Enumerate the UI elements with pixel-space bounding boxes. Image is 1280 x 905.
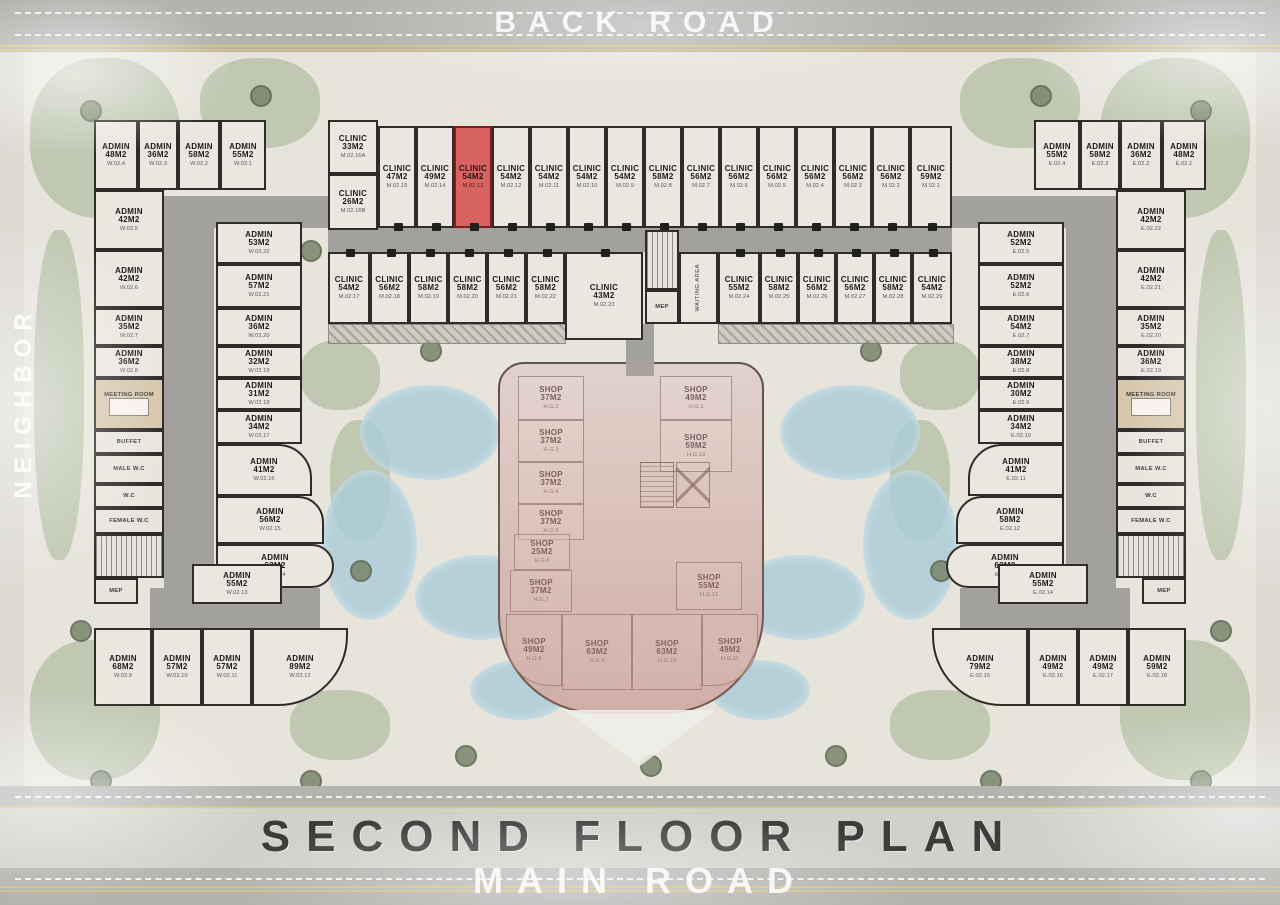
unit-e-02-1[interactable]: ADMIN48M2E.02.1 xyxy=(1162,120,1206,190)
green-area xyxy=(34,230,84,560)
room-mep: MEP xyxy=(1142,578,1186,604)
door-icon xyxy=(622,223,631,231)
tree-icon xyxy=(250,85,272,107)
unit-m-02-2[interactable]: CLINIC56M2M.02.2 xyxy=(872,126,910,228)
door-icon xyxy=(543,249,552,257)
page-title: SECOND FLOOR PLAN xyxy=(0,812,1280,862)
unit-m-02-28[interactable]: CLINIC58M2M.02.28 xyxy=(874,252,912,324)
unit-label: M.02.26 xyxy=(807,294,828,300)
door-icon xyxy=(929,249,938,257)
unit-label: M.02.19 xyxy=(418,294,439,300)
door-icon xyxy=(774,223,783,231)
unit-label: M.02.11 xyxy=(539,183,560,189)
unit-label: 36M2 xyxy=(118,358,139,367)
unit-label: 41M2 xyxy=(1005,466,1026,475)
unit-label: 63M2 xyxy=(586,648,607,657)
unit-label: 55M2 xyxy=(226,580,247,589)
unit-label: 54M2 xyxy=(614,173,635,182)
unit-label: 42M2 xyxy=(1140,275,1161,284)
unit-h-g-10[interactable]: SHOP63M2H.G.10 xyxy=(632,614,702,690)
unit-e-02-10[interactable]: ADMIN34M2E.02.10 xyxy=(978,410,1064,444)
door-icon xyxy=(387,249,396,257)
unit-label: 32M2 xyxy=(248,358,269,367)
unit-label: H.G.7 xyxy=(533,597,548,603)
unit-w-02-5[interactable]: ADMIN42M2W.02.5 xyxy=(94,190,164,250)
unit-label: E.02.6 xyxy=(1013,292,1030,298)
unit-label: 56M2 xyxy=(379,284,400,293)
unit-m-02-13[interactable]: CLINIC54M2M.02.13 xyxy=(454,126,492,228)
unit-w-02-17[interactable]: ADMIN34M2W.02.17 xyxy=(216,410,302,444)
pergola-hatch xyxy=(328,324,566,344)
pool-shape xyxy=(322,470,417,620)
unit-label: M.02.4 xyxy=(806,183,824,189)
unit-m-02-18[interactable]: CLINIC56M2M.02.18 xyxy=(370,252,409,324)
unit-e-02-2[interactable]: ADMIN36M2E.02.2 xyxy=(1120,120,1162,190)
tree-icon xyxy=(350,560,372,582)
unit-label: 38M2 xyxy=(1010,358,1031,367)
unit-m-02-21[interactable]: CLINIC56M2M.02.21 xyxy=(487,252,526,324)
unit-label: 36M2 xyxy=(1140,358,1161,367)
unit-label: M.02.22 xyxy=(535,294,556,300)
room-female-w-c: FEMALE W.C xyxy=(1116,508,1186,534)
tower-elevator-icon xyxy=(676,462,710,508)
unit-e-02-4[interactable]: ADMIN55M2E.02.4 xyxy=(1034,120,1080,190)
unit-label: 49M2 xyxy=(1092,663,1113,672)
back-road-label: BACK ROAD xyxy=(0,6,1280,40)
unit-m-02-25[interactable]: CLINIC58M2M.02.25 xyxy=(760,252,798,324)
unit-label: M.02.28 xyxy=(883,294,904,300)
unit-label: 36M2 xyxy=(147,151,168,160)
unit-w-02-3[interactable]: ADMIN36M2W.02.3 xyxy=(138,120,178,190)
unit-label: 43M2 xyxy=(593,292,614,301)
room-mep: MEP xyxy=(645,290,679,324)
unit-m-02-1[interactable]: CLINIC59M2M.02.1 xyxy=(910,126,952,228)
unit-label: M.02.1 xyxy=(922,183,940,189)
unit-label: 59M2 xyxy=(1146,663,1167,672)
door-icon xyxy=(928,223,937,231)
unit-w-02-4[interactable]: ADMIN48M2W.02.4 xyxy=(94,120,138,190)
unit-e-02-18[interactable]: ADMIN59M2E.02.18 xyxy=(1128,628,1186,706)
unit-label: M.02.15 xyxy=(387,183,408,189)
tower-stairs-icon xyxy=(640,462,674,508)
unit-e-02-21[interactable]: ADMIN42M2E.02.21 xyxy=(1116,250,1186,308)
door-icon xyxy=(776,249,785,257)
unit-label: 54M2 xyxy=(576,173,597,182)
room-female-w-c: FEMALE W.C xyxy=(94,508,164,534)
unit-w-02-9[interactable]: ADMIN68M2W.02.9 xyxy=(94,628,152,706)
unit-w-02-19[interactable]: ADMIN32M2W.02.19 xyxy=(216,346,302,378)
unit-label: W.02.9 xyxy=(114,673,132,679)
unit-label: M.02.10 xyxy=(577,183,598,189)
floor-plan-canvas: ADMIN48M2W.02.4ADMIN36M2W.02.3ADMIN58M2W… xyxy=(0,0,1280,905)
unit-label: W.02.6 xyxy=(120,285,138,291)
unit-label: 59M2 xyxy=(920,173,941,182)
unit-label: W.02.21 xyxy=(248,292,269,298)
room-male-w-c: MALE W.C xyxy=(94,454,164,484)
unit-label: H.G.2 xyxy=(543,404,558,410)
room-buffet: BUFFET xyxy=(1116,430,1186,454)
room-mep: MEP xyxy=(94,578,138,604)
tree-icon xyxy=(455,745,477,767)
unit-label: 49M2 xyxy=(424,173,445,182)
unit-label: W.02.11 xyxy=(217,673,238,679)
door-icon xyxy=(601,249,610,257)
unit-h-g-7[interactable]: SHOP37M2H.G.7 xyxy=(510,570,572,612)
unit-m-02-14[interactable]: CLINIC49M2M.02.14 xyxy=(416,126,454,228)
unit-label: 63M2 xyxy=(656,648,677,657)
room-label: MEP xyxy=(109,588,122,594)
unit-label: M.02.13 xyxy=(463,183,484,189)
unit-w-02-2[interactable]: ADMIN58M2W.02.2 xyxy=(178,120,220,190)
unit-e-02-11[interactable]: ADMIN41M2E.02.11 xyxy=(968,444,1064,496)
unit-label: W.02.19 xyxy=(248,368,269,374)
unit-label: 30M2 xyxy=(1010,390,1031,399)
unit-label: H.G.10 xyxy=(658,658,676,664)
unit-label: 37M2 xyxy=(540,518,561,527)
unit-label: 56M2 xyxy=(844,284,865,293)
lane-marking xyxy=(0,45,1280,47)
unit-label: W.02.1 xyxy=(234,161,252,167)
tree-icon xyxy=(300,240,322,262)
unit-label: E.02.10 xyxy=(1011,433,1031,439)
unit-label: 56M2 xyxy=(804,173,825,182)
unit-label: H.G.11 xyxy=(721,656,739,662)
tree-icon xyxy=(1210,620,1232,642)
unit-label: M.02.2 xyxy=(882,183,900,189)
unit-label: H.G.13 xyxy=(687,452,705,458)
pool-shape xyxy=(780,385,920,480)
door-icon xyxy=(504,249,513,257)
unit-e-02-7[interactable]: ADMIN54M2E.02.7 xyxy=(978,308,1064,346)
unit-w-02-15[interactable]: ADMIN56M2W.02.15 xyxy=(216,496,324,544)
unit-label: 58M2 xyxy=(418,284,439,293)
unit-w-02-22[interactable]: ADMIN53M2W.02.22 xyxy=(216,222,302,264)
room-buffet: BUFFET xyxy=(94,430,164,454)
unit-label: 48M2 xyxy=(105,151,126,160)
unit-label: M.02.18 xyxy=(379,294,400,300)
unit-label: 56M2 xyxy=(880,173,901,182)
unit-label: 25M2 xyxy=(531,548,552,557)
unit-m-02-16a[interactable]: CLINIC33M2M.02.16A xyxy=(328,120,378,174)
unit-label: H.G.9 xyxy=(589,658,604,664)
green-area xyxy=(300,340,380,410)
unit-h-g-12[interactable]: SHOP55M2H.G.12 xyxy=(676,562,742,610)
door-icon xyxy=(470,223,479,231)
door-icon xyxy=(584,223,593,231)
unit-h-g-9[interactable]: SHOP63M2H.G.9 xyxy=(562,614,632,690)
unit-label: M.02.20 xyxy=(457,294,478,300)
unit-label: 58M2 xyxy=(457,284,478,293)
unit-label: E.02.21 xyxy=(1141,285,1161,291)
unit-e-02-17[interactable]: ADMIN49M2E.02.17 xyxy=(1078,628,1128,706)
unit-label: M.02.21 xyxy=(496,294,517,300)
unit-label: M.02.7 xyxy=(692,183,710,189)
room-label: MEP xyxy=(655,304,668,310)
unit-w-02-1[interactable]: ADMIN55M2W.02.1 xyxy=(220,120,266,190)
unit-m-02-27[interactable]: CLINIC56M2M.02.27 xyxy=(836,252,874,324)
unit-label: E.02.2 xyxy=(1133,161,1150,167)
unit-h-g-2[interactable]: SHOP37M2H.G.2 xyxy=(518,376,584,420)
unit-e-02-19[interactable]: ADMIN36M2E.02.19 xyxy=(1116,346,1186,378)
unit-w-02-10[interactable]: ADMIN57M2W.02.10 xyxy=(152,628,202,706)
door-icon xyxy=(394,223,403,231)
room-label: W.C xyxy=(123,493,135,499)
pergola-hatch xyxy=(718,324,954,344)
room-meeting-room: MEETING ROOM xyxy=(94,378,164,430)
neighbor-label: NEIGHBOR xyxy=(10,292,38,512)
unit-label: 55M2 xyxy=(1046,151,1067,160)
unit-label: 49M2 xyxy=(719,646,740,655)
unit-w-02-18[interactable]: ADMIN31M2W.02.18 xyxy=(216,378,302,410)
unit-label: H.G.3 xyxy=(543,447,558,453)
room-label: MEP xyxy=(1157,588,1170,594)
unit-label: 35M2 xyxy=(1140,323,1161,332)
unit-label: W.02.20 xyxy=(248,333,269,339)
unit-label: W.02.3 xyxy=(149,161,167,167)
unit-label: 68M2 xyxy=(112,663,133,672)
unit-m-02-22[interactable]: CLINIC58M2M.02.22 xyxy=(526,252,565,324)
unit-label: E.02.5 xyxy=(1013,249,1030,255)
unit-e-02-20[interactable]: ADMIN35M2E.02.20 xyxy=(1116,308,1186,346)
unit-m-02-6[interactable]: CLINIC56M2M.02.6 xyxy=(720,126,758,228)
door-icon xyxy=(736,249,745,257)
unit-label: 56M2 xyxy=(842,173,863,182)
unit-label: 42M2 xyxy=(118,275,139,284)
unit-e-02-8[interactable]: ADMIN38M2E.02.8 xyxy=(978,346,1064,378)
unit-label: 37M2 xyxy=(540,437,561,446)
unit-label: 48M2 xyxy=(1173,151,1194,160)
tree-icon xyxy=(1190,100,1212,122)
unit-label: 55M2 xyxy=(728,284,749,293)
unit-label: E.02.18 xyxy=(1147,673,1167,679)
unit-e-02-14[interactable]: ADMIN55M2E.02.14 xyxy=(998,564,1088,604)
unit-m-02-9[interactable]: CLINIC54M2M.02.9 xyxy=(606,126,644,228)
room-label: MEETING ROOM xyxy=(104,392,154,398)
unit-e-02-6[interactable]: ADMIN52M2E.02.6 xyxy=(978,264,1064,308)
door-icon xyxy=(546,223,555,231)
unit-label: H.G.8 xyxy=(526,656,541,662)
unit-label: E.02.20 xyxy=(1141,333,1161,339)
unit-label: 52M2 xyxy=(1010,239,1031,248)
unit-label: E.02.19 xyxy=(1141,368,1161,374)
unit-label: W.02.17 xyxy=(248,433,269,439)
unit-label: W.02.10 xyxy=(166,673,187,679)
unit-m-02-24[interactable]: CLINIC55M2M.02.24 xyxy=(718,252,760,324)
unit-label: W.02.4 xyxy=(107,161,125,167)
unit-label: 58M2 xyxy=(882,284,903,293)
unit-h-g-6[interactable]: SHOP25M2H.G.6 xyxy=(514,534,570,570)
unit-w-02-13[interactable]: ADMIN55M2W.02.13 xyxy=(192,564,282,604)
room-male-w-c: MALE W.C xyxy=(1116,454,1186,484)
unit-label: 56M2 xyxy=(766,173,787,182)
unit-label: W.02.8 xyxy=(120,368,138,374)
room-waiting-area: WAITING AREA xyxy=(679,252,718,324)
unit-label: 56M2 xyxy=(496,284,517,293)
unit-label: 57M2 xyxy=(166,663,187,672)
unit-label: E.02.12 xyxy=(1000,526,1020,532)
unit-w-02-8[interactable]: ADMIN36M2W.02.8 xyxy=(94,346,164,378)
pool-shape xyxy=(360,385,500,480)
door-icon xyxy=(736,223,745,231)
door-icon xyxy=(852,249,861,257)
unit-m-02-26[interactable]: CLINIC56M2M.02.26 xyxy=(798,252,836,324)
unit-label: 58M2 xyxy=(188,151,209,160)
corridor xyxy=(1066,196,1116,588)
unit-e-02-9[interactable]: ADMIN30M2E.02.9 xyxy=(978,378,1064,410)
door-icon xyxy=(508,223,517,231)
unit-label: H.G.4 xyxy=(543,489,558,495)
unit-label: 34M2 xyxy=(1010,423,1031,432)
stairs xyxy=(1116,534,1186,578)
unit-w-02-20[interactable]: ADMIN36M2W.02.20 xyxy=(216,308,302,346)
unit-label: 37M2 xyxy=(530,587,551,596)
unit-label: W.02.7 xyxy=(120,333,138,339)
unit-m-02-4[interactable]: CLINIC56M2M.02.4 xyxy=(796,126,834,228)
unit-label: M.02.29 xyxy=(922,294,943,300)
unit-m-02-7[interactable]: CLINIC56M2M.02.7 xyxy=(682,126,720,228)
unit-label: E.02.15 xyxy=(970,673,990,679)
unit-label: 89M2 xyxy=(289,663,310,672)
unit-e-02-3[interactable]: ADMIN58M2E.02.3 xyxy=(1080,120,1120,190)
unit-label: M.02.23 xyxy=(594,302,615,308)
unit-e-02-5[interactable]: ADMIN52M2E.02.5 xyxy=(978,222,1064,264)
unit-label: W.02.13 xyxy=(226,590,247,596)
unit-label: M.02.14 xyxy=(425,183,446,189)
unit-m-02-19[interactable]: CLINIC58M2M.02.19 xyxy=(409,252,448,324)
unit-label: 58M2 xyxy=(768,284,789,293)
green-area xyxy=(900,340,980,410)
unit-label: E.02.22 xyxy=(1141,226,1161,232)
unit-label: E.02.16 xyxy=(1043,673,1063,679)
lane-marking xyxy=(15,796,1265,798)
unit-m-02-8[interactable]: CLINIC58M2M.02.8 xyxy=(644,126,682,228)
unit-label: 36M2 xyxy=(248,323,269,332)
unit-label: 37M2 xyxy=(540,394,561,403)
unit-label: 54M2 xyxy=(921,284,942,293)
unit-label: 56M2 xyxy=(806,284,827,293)
unit-label: 49M2 xyxy=(523,646,544,655)
unit-label: 56M2 xyxy=(259,516,280,525)
unit-label: E.02.17 xyxy=(1093,673,1113,679)
unit-label: 42M2 xyxy=(1140,216,1161,225)
unit-label: M.02.8 xyxy=(654,183,672,189)
unit-label: 53M2 xyxy=(248,239,269,248)
main-road-label: MAIN ROAD xyxy=(0,860,1280,902)
unit-label: 79M2 xyxy=(969,663,990,672)
unit-label: H.G.12 xyxy=(700,592,718,598)
unit-m-02-20[interactable]: CLINIC58M2M.02.20 xyxy=(448,252,487,324)
pool-shape xyxy=(863,470,958,620)
unit-label: E.02.1 xyxy=(1176,161,1193,167)
unit-e-02-22[interactable]: ADMIN42M2E.02.22 xyxy=(1116,190,1186,250)
unit-label: E.02.11 xyxy=(1006,476,1026,482)
room-label: FEMALE W.C xyxy=(109,518,148,524)
unit-m-02-23[interactable]: CLINIC43M2M.02.23 xyxy=(565,252,643,340)
green-area xyxy=(1196,230,1246,560)
room-meeting-room: MEETING ROOM xyxy=(1116,378,1186,430)
unit-w-02-16[interactable]: ADMIN41M2W.02.16 xyxy=(216,444,312,496)
unit-m-02-10[interactable]: CLINIC54M2M.02.10 xyxy=(568,126,606,228)
unit-w-02-7[interactable]: ADMIN35M2W.02.7 xyxy=(94,308,164,346)
room-w-c: W.C xyxy=(1116,484,1186,508)
unit-label: 54M2 xyxy=(462,173,483,182)
unit-label: 49M2 xyxy=(1042,663,1063,672)
unit-m-02-29[interactable]: CLINIC54M2M.02.29 xyxy=(912,252,952,324)
room-label: MALE W.C xyxy=(1135,466,1166,472)
unit-m-02-3[interactable]: CLINIC56M2M.02.3 xyxy=(834,126,872,228)
door-icon xyxy=(888,223,897,231)
unit-w-02-6[interactable]: ADMIN42M2W.02.6 xyxy=(94,250,164,308)
unit-label: 57M2 xyxy=(216,663,237,672)
unit-label: M.02.6 xyxy=(730,183,748,189)
tree-icon xyxy=(1030,85,1052,107)
unit-label: 58M2 xyxy=(652,173,673,182)
unit-label: M.02.27 xyxy=(845,294,866,300)
unit-label: W.02.15 xyxy=(259,526,280,532)
door-icon xyxy=(346,249,355,257)
unit-label: W.02.5 xyxy=(120,226,138,232)
door-icon xyxy=(850,223,859,231)
unit-label: M.02.9 xyxy=(616,183,634,189)
unit-label: M.02.17 xyxy=(339,294,360,300)
unit-m-02-17[interactable]: CLINIC54M2M.02.17 xyxy=(328,252,370,324)
unit-label: E.02.8 xyxy=(1013,368,1030,374)
unit-label: 56M2 xyxy=(728,173,749,182)
door-icon xyxy=(432,223,441,231)
unit-e-02-12[interactable]: ADMIN58M2E.02.12 xyxy=(956,496,1064,544)
unit-label: 33M2 xyxy=(342,143,363,152)
unit-label: 55M2 xyxy=(1032,580,1053,589)
unit-w-02-11[interactable]: ADMIN57M2W.02.11 xyxy=(202,628,252,706)
unit-label: 34M2 xyxy=(248,423,269,432)
room-label: MEETING ROOM xyxy=(1126,392,1176,398)
lane-marking xyxy=(0,49,1280,51)
unit-label: H.G.1 xyxy=(688,404,703,410)
unit-label: E.02.4 xyxy=(1049,161,1066,167)
unit-label: W.02.18 xyxy=(248,400,269,406)
unit-label: 56M2 xyxy=(690,173,711,182)
unit-label: E.02.9 xyxy=(1013,400,1030,406)
unit-w-02-21[interactable]: ADMIN57M2W.02.21 xyxy=(216,264,302,308)
room-label: W.C xyxy=(1145,493,1157,499)
door-icon xyxy=(890,249,899,257)
room-label: FEMALE W.C xyxy=(1131,518,1170,524)
unit-label: M.02.12 xyxy=(501,183,522,189)
room-label: WAITING AREA xyxy=(695,264,701,312)
unit-m-02-16b[interactable]: CLINIC26M2M.02.16B xyxy=(328,174,378,230)
door-icon xyxy=(814,249,823,257)
unit-label: 36M2 xyxy=(1130,151,1151,160)
unit-m-02-5[interactable]: CLINIC56M2M.02.5 xyxy=(758,126,796,228)
door-icon xyxy=(465,249,474,257)
unit-label: M.02.5 xyxy=(768,183,786,189)
unit-m-02-11[interactable]: CLINIC54M2M.02.11 xyxy=(530,126,568,228)
unit-h-g-4[interactable]: SHOP37M2H.G.4 xyxy=(518,462,584,504)
unit-label: 59M2 xyxy=(685,442,706,451)
unit-m-02-12[interactable]: CLINIC54M2M.02.12 xyxy=(492,126,530,228)
unit-e-02-16[interactable]: ADMIN49M2E.02.16 xyxy=(1028,628,1078,706)
unit-label: 57M2 xyxy=(248,282,269,291)
unit-label: M.02.3 xyxy=(844,183,862,189)
unit-label: 58M2 xyxy=(999,516,1020,525)
unit-h-g-1[interactable]: SHOP49M2H.G.1 xyxy=(660,376,732,420)
unit-label: 41M2 xyxy=(253,466,274,475)
tree-icon xyxy=(70,620,92,642)
unit-label: 58M2 xyxy=(535,284,556,293)
unit-h-g-3[interactable]: SHOP37M2H.G.3 xyxy=(518,420,584,462)
unit-label: M.02.16B xyxy=(341,208,366,214)
unit-m-02-15[interactable]: CLINIC47M2M.02.15 xyxy=(378,126,416,228)
